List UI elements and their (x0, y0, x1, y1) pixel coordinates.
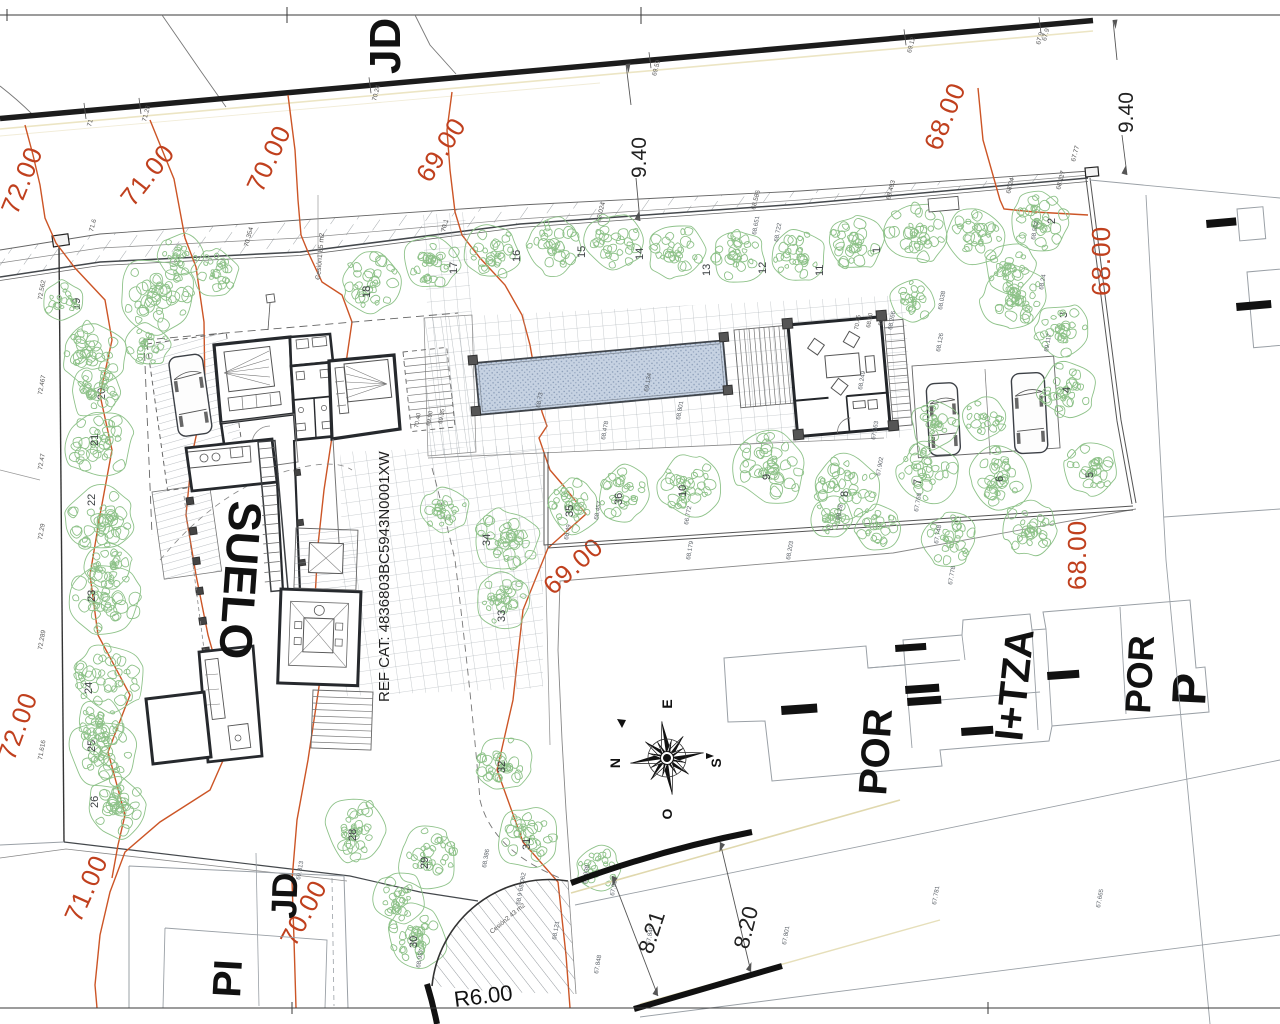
svg-text:10: 10 (677, 485, 689, 497)
svg-text:15: 15 (576, 246, 588, 258)
svg-text:SUELO: SUELO (209, 499, 272, 661)
svg-text:7: 7 (912, 479, 924, 485)
svg-text:12: 12 (757, 262, 769, 274)
svg-text:JD: JD (263, 872, 306, 919)
svg-text:4: 4 (1061, 387, 1073, 393)
svg-text:18: 18 (361, 286, 373, 298)
svg-text:5: 5 (1084, 472, 1096, 478)
svg-text:N: N (607, 758, 623, 768)
svg-text:P: P (1163, 672, 1218, 707)
svg-text:34: 34 (481, 534, 493, 546)
svg-text:17: 17 (448, 262, 460, 274)
svg-text:22: 22 (86, 494, 98, 506)
svg-text:9.40: 9.40 (628, 137, 651, 178)
svg-text:14: 14 (634, 248, 646, 260)
svg-text:68.00: 68.00 (1086, 226, 1116, 296)
svg-text:9.40: 9.40 (1115, 92, 1138, 133)
svg-text:16: 16 (511, 250, 523, 262)
svg-text:23: 23 (86, 590, 98, 602)
svg-text:32: 32 (496, 761, 508, 773)
svg-text:8: 8 (839, 491, 851, 497)
svg-text:30: 30 (408, 936, 420, 948)
svg-text:1: 1 (871, 247, 883, 253)
svg-text:6: 6 (994, 476, 1006, 482)
svg-text:POR: POR (851, 707, 901, 797)
svg-text:35: 35 (564, 505, 576, 517)
svg-text:REF CAT: 4836803BC5943N0001XW: REF CAT: 4836803BC5943N0001XW (376, 450, 393, 702)
svg-text:O: O (659, 808, 675, 819)
svg-text:28: 28 (347, 829, 359, 841)
svg-text:24: 24 (83, 682, 95, 694)
svg-text:JD: JD (361, 18, 410, 74)
svg-text:26: 26 (89, 796, 101, 808)
svg-text:9: 9 (761, 474, 773, 480)
svg-text:68.00: 68.00 (1062, 520, 1092, 590)
svg-text:29: 29 (419, 857, 431, 869)
svg-text:36: 36 (613, 493, 625, 505)
svg-text:E: E (659, 699, 675, 708)
svg-text:33: 33 (496, 610, 508, 622)
svg-text:S: S (708, 758, 724, 767)
svg-text:11: 11 (814, 265, 826, 276)
svg-text:21: 21 (89, 434, 101, 446)
svg-text:POR: POR (1117, 634, 1162, 714)
svg-text:2: 2 (1046, 218, 1058, 224)
svg-text:PI: PI (205, 958, 251, 998)
svg-text:13: 13 (701, 264, 713, 276)
svg-text:31: 31 (521, 838, 533, 850)
